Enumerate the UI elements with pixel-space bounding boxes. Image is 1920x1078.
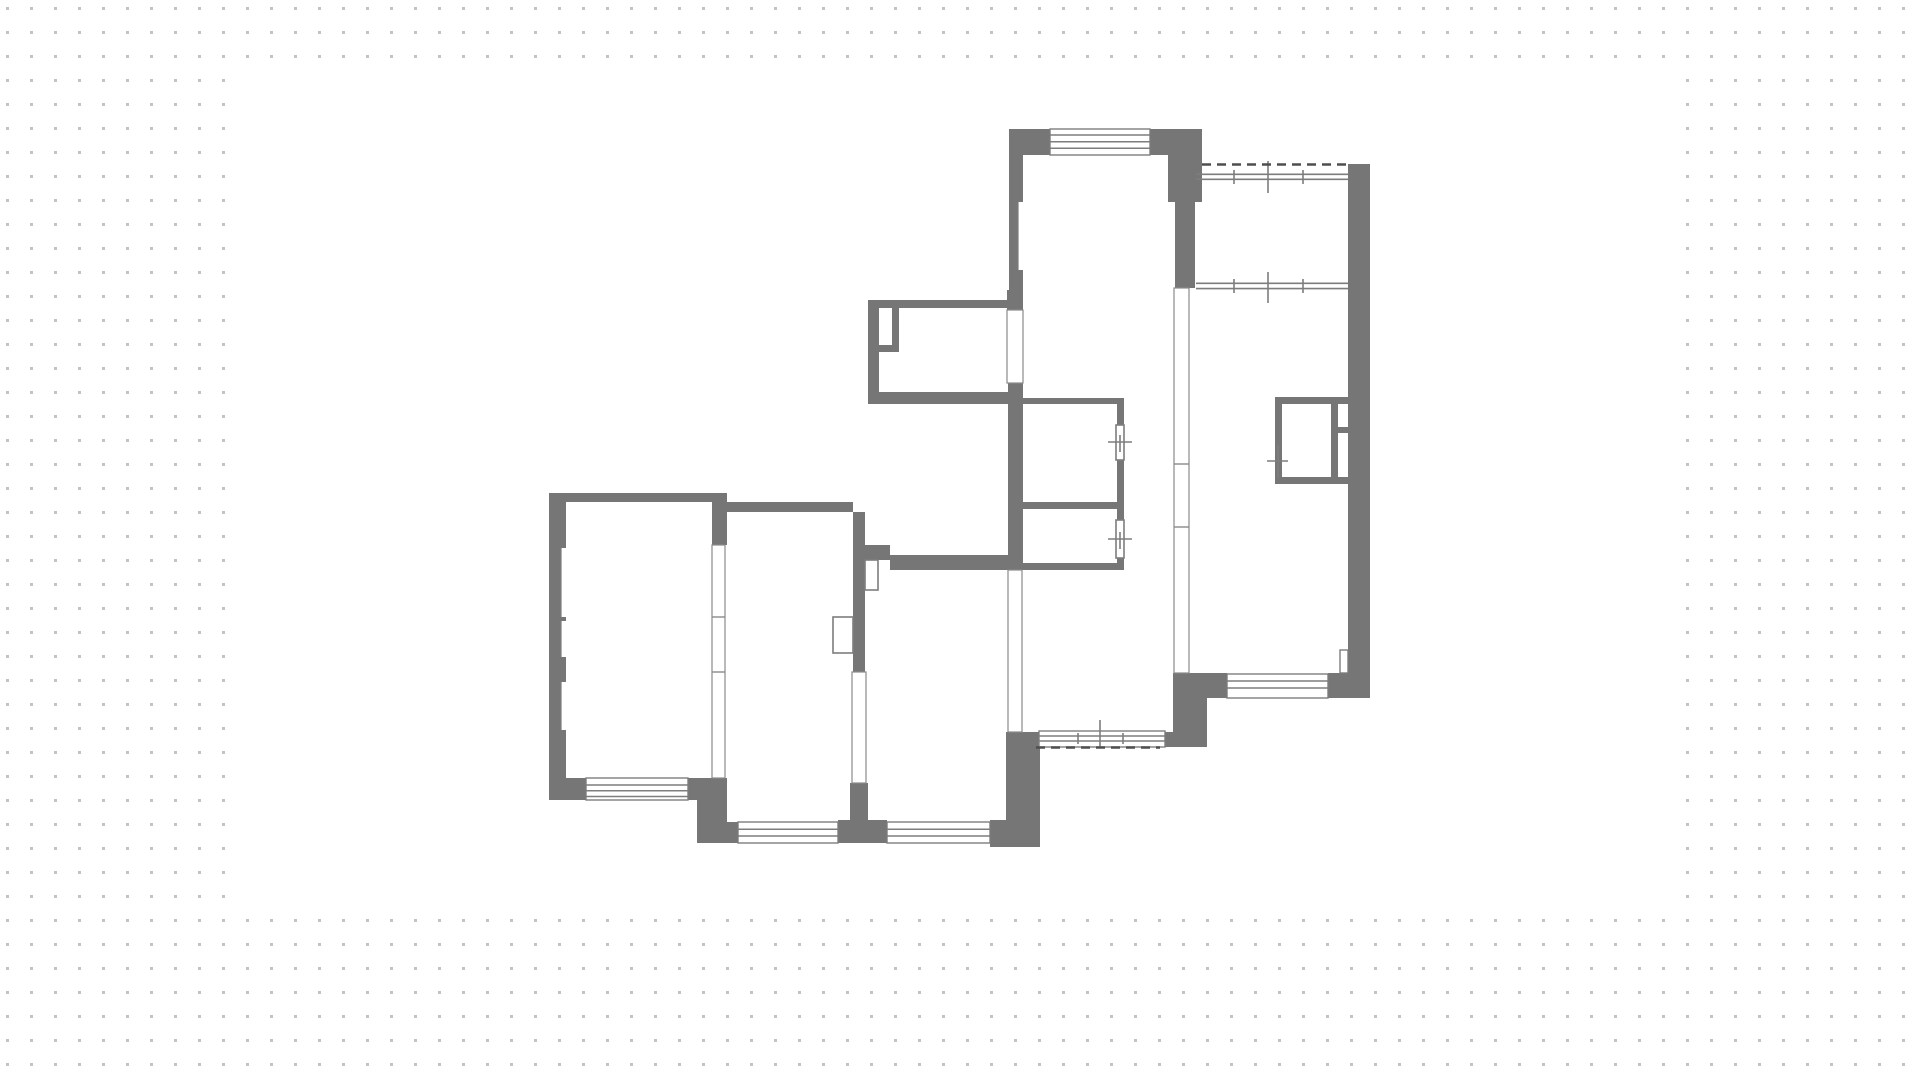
partition-left-second <box>712 545 725 778</box>
left-room-bottom-wall-west <box>549 778 586 800</box>
closet-divider-horizontal <box>1338 427 1350 433</box>
door-leaf-third-room <box>865 560 878 590</box>
partition-second-third <box>852 672 866 783</box>
opening-vestibule-living <box>1007 310 1023 383</box>
second-room-bottom-strip <box>727 822 738 843</box>
plan-paper <box>235 62 1686 908</box>
vestibule-top-wall <box>868 300 1009 308</box>
floor-plan-svg <box>0 0 1920 1078</box>
closet-divider-vertical <box>1331 404 1338 477</box>
window-second-room-bottom <box>738 822 838 843</box>
niche-left-wall-1 <box>561 548 567 617</box>
left-corner-block <box>712 493 727 545</box>
window-third-room-bottom <box>887 822 990 843</box>
right-room-bottom-corner-west <box>1173 673 1227 698</box>
left-room-bottom-wall-east <box>688 778 727 800</box>
partition-hall-third <box>1008 570 1022 732</box>
vestibule-left-wall <box>868 308 879 404</box>
door-leaf-second-room <box>833 617 853 653</box>
second-room-top-wall <box>725 502 853 512</box>
bath-middle-wall <box>1022 502 1123 509</box>
canvas-viewport[interactable] <box>0 0 1920 1078</box>
closet-bottom <box>1275 477 1350 484</box>
closet-top <box>1275 397 1350 404</box>
second-third-partition-foot <box>850 783 868 828</box>
niche-left-wall-2 <box>561 621 567 657</box>
living-right-wall-lower <box>1175 202 1195 288</box>
background-layer <box>0 0 1920 1078</box>
bath-left-wall <box>1010 398 1022 570</box>
left-room-top-wall <box>549 493 725 502</box>
window-right-room-bottom <box>1227 674 1328 698</box>
right-room-right-wall <box>1348 164 1370 698</box>
second-third-partition-column <box>853 512 865 672</box>
third-room-top-step <box>865 545 890 560</box>
vestibule-pier-horizontal <box>879 345 899 352</box>
bath-top-wall <box>1022 398 1123 404</box>
niche-right-corner <box>1340 650 1348 673</box>
vestibule-bottom-wall <box>868 392 1008 404</box>
living-top-wall-left <box>1009 129 1050 155</box>
niche-living-left-wall <box>1018 202 1023 270</box>
living-top-wall-right <box>1150 129 1202 155</box>
third-room-right-wall <box>1006 732 1040 847</box>
bottom-step-block <box>697 800 727 843</box>
window-hall-bottom <box>1039 731 1165 747</box>
third-room-top-wall <box>890 555 1008 570</box>
niche-left-wall-3 <box>561 682 567 730</box>
bath-bottom-wall <box>1010 563 1124 570</box>
partition-hall-right-room <box>1174 288 1189 673</box>
vestibule-east-wall-top <box>1007 290 1023 310</box>
